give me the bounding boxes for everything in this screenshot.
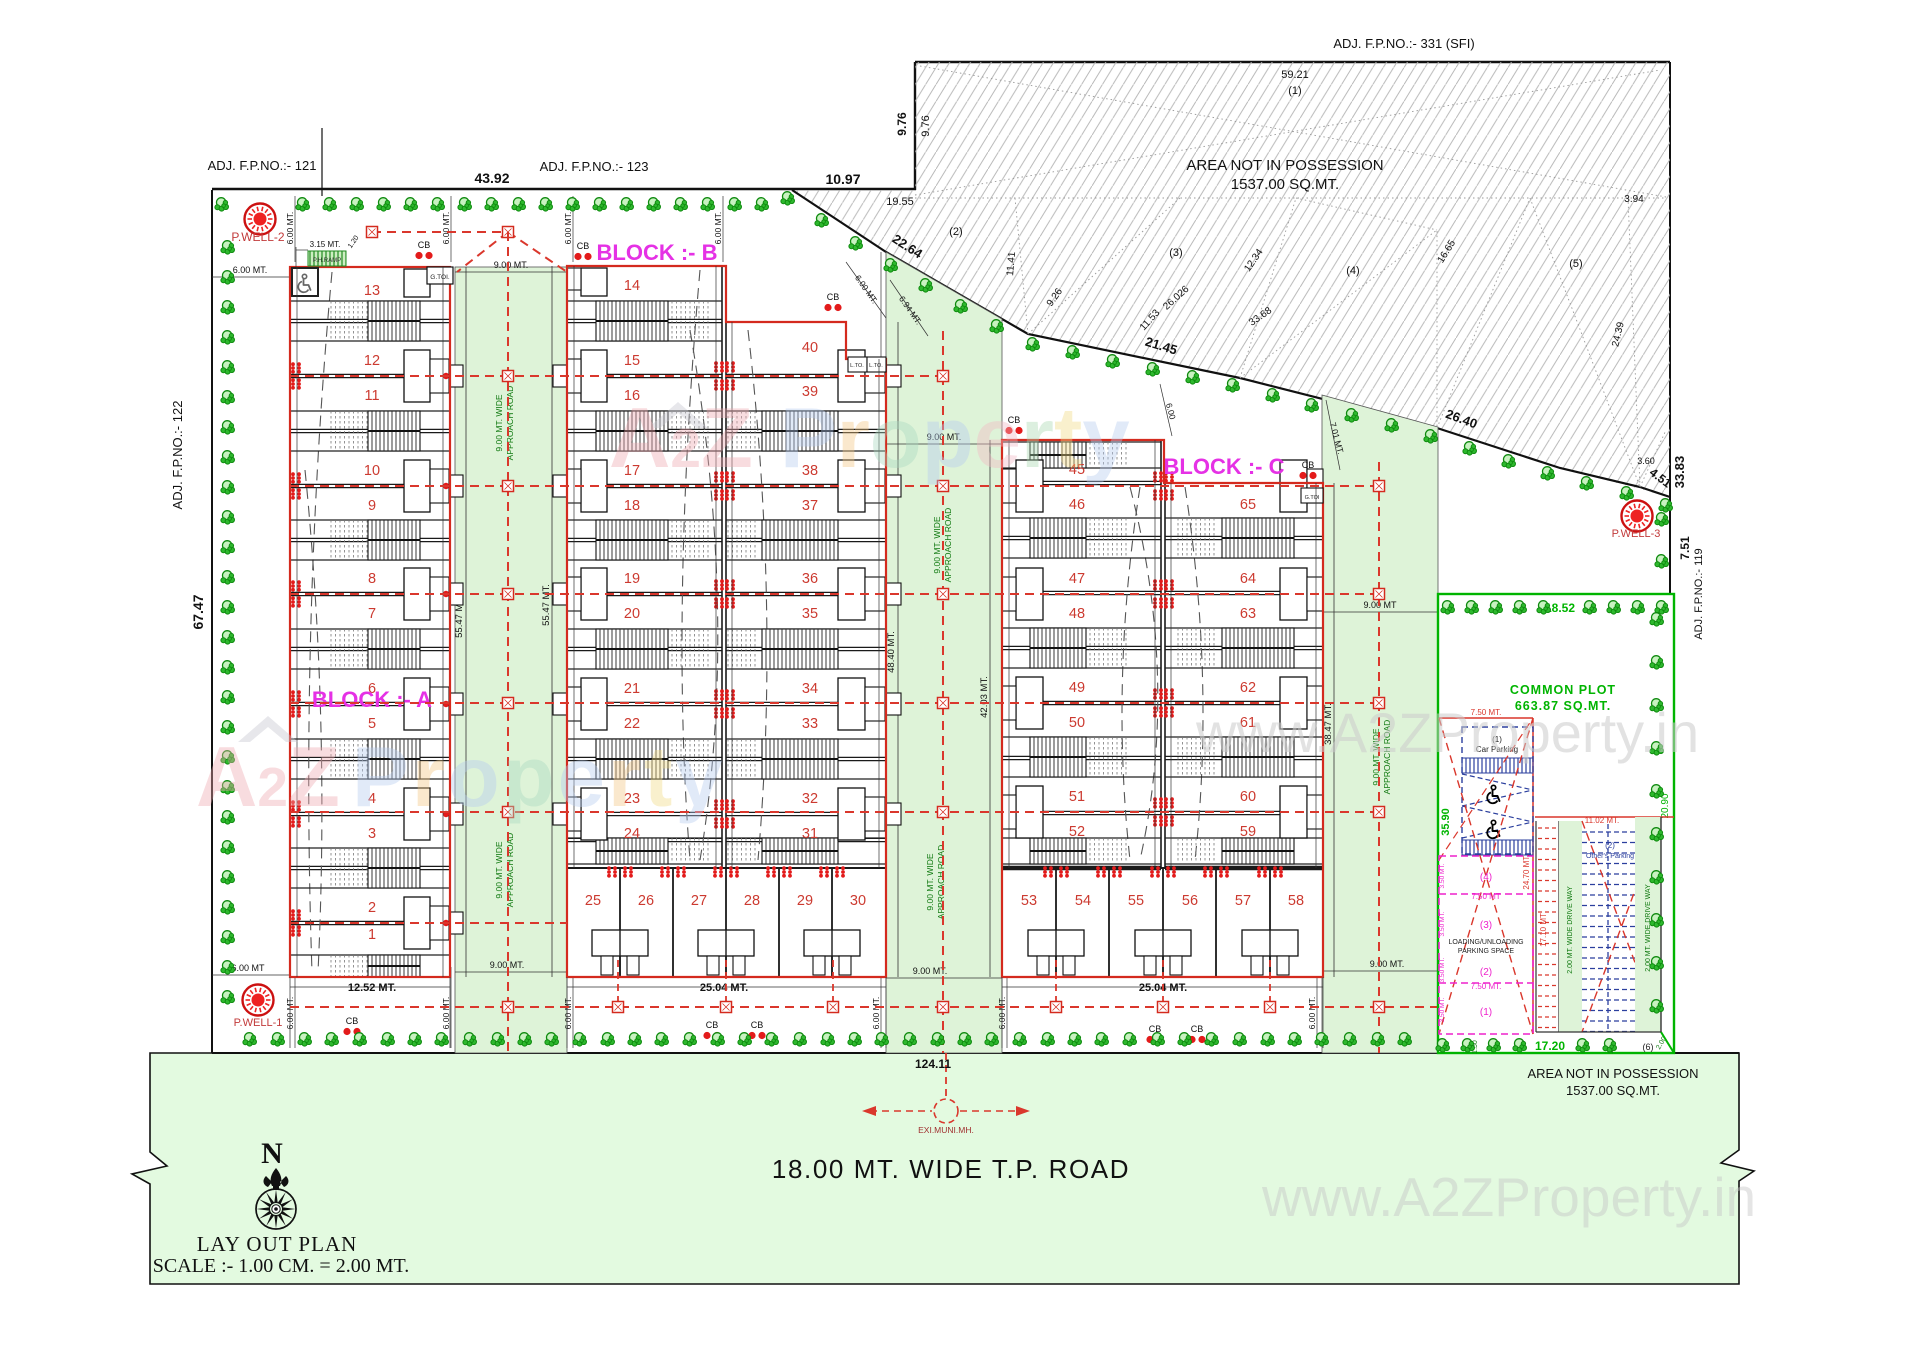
svg-text:ADJ. F.P.NO.:- 119: ADJ. F.P.NO.:- 119 <box>1693 548 1705 639</box>
svg-text:56: 56 <box>1182 893 1198 909</box>
svg-text:21: 21 <box>624 681 640 697</box>
svg-text:20: 20 <box>624 606 640 622</box>
svg-text:54: 54 <box>1075 893 1091 909</box>
svg-text:62: 62 <box>1240 680 1256 696</box>
svg-text:9.76: 9.76 <box>920 115 932 136</box>
svg-text:17.10 MT: 17.10 MT <box>1539 913 1548 947</box>
svg-text:7: 7 <box>368 606 376 622</box>
svg-text:(2): (2) <box>1605 841 1615 850</box>
svg-text:6.00 MT.: 6.00 MT. <box>1307 997 1317 1030</box>
svg-text:15: 15 <box>624 353 640 369</box>
svg-text:P.H.RAMP: P.H.RAMP <box>313 258 341 264</box>
svg-text:P.WELL-2: P.WELL-2 <box>231 230 284 244</box>
svg-text:42.03 MT.: 42.03 MT. <box>979 676 990 718</box>
svg-text:35: 35 <box>802 606 818 622</box>
svg-text:58: 58 <box>1288 893 1304 909</box>
svg-text:BLOCK :- C: BLOCK :- C <box>1164 454 1285 479</box>
svg-text:APPROACH ROAD: APPROACH ROAD <box>936 845 946 920</box>
svg-text:18: 18 <box>624 498 640 514</box>
svg-text:10.97: 10.97 <box>825 171 860 187</box>
svg-text:59: 59 <box>1240 824 1256 840</box>
svg-text:LOADING/UNLOADING: LOADING/UNLOADING <box>1448 939 1523 946</box>
svg-text:3.50 MT.: 3.50 MT. <box>1439 997 1446 1022</box>
svg-text:50: 50 <box>1069 715 1085 731</box>
svg-text:46: 46 <box>1069 497 1085 513</box>
svg-text:2.00 MT. WIDE DRIVE WAY: 2.00 MT. WIDE DRIVE WAY <box>1567 886 1574 974</box>
svg-text:48: 48 <box>1069 606 1085 622</box>
svg-text:P.WELL-3: P.WELL-3 <box>1612 528 1661 540</box>
svg-text:EXI.MUNI.MH.: EXI.MUNI.MH. <box>918 1125 974 1135</box>
svg-text:65: 65 <box>1240 497 1256 513</box>
svg-text:36: 36 <box>802 571 818 587</box>
svg-text:G.TOI.: G.TOI. <box>430 274 450 281</box>
svg-text:AREA NOT IN POSSESSION: AREA NOT IN POSSESSION <box>1186 157 1383 174</box>
svg-text:(2): (2) <box>949 226 962 238</box>
svg-text:3.50 MT.: 3.50 MT. <box>1439 911 1446 936</box>
svg-text:L.TO.: L.TO. <box>869 363 883 369</box>
svg-text:40: 40 <box>802 340 818 356</box>
svg-text:7.50 MT.: 7.50 MT. <box>1471 982 1502 991</box>
svg-text:9.00 MT: 9.00 MT <box>1363 600 1397 610</box>
svg-text:ADJ. F.P.NO.:- 331 (SFI): ADJ. F.P.NO.:- 331 (SFI) <box>1333 36 1474 51</box>
svg-text:49: 49 <box>1069 680 1085 696</box>
svg-text:BLOCK :- B: BLOCK :- B <box>597 240 718 265</box>
svg-text:31: 31 <box>802 826 818 842</box>
svg-text:18.00 MT. WIDE T.P. ROAD: 18.00 MT. WIDE T.P. ROAD <box>772 1154 1130 1184</box>
svg-text:34: 34 <box>802 681 818 697</box>
svg-text:30: 30 <box>850 893 866 909</box>
svg-text:6.00 MT.: 6.00 MT. <box>285 212 295 245</box>
svg-text:43.92: 43.92 <box>474 170 509 186</box>
svg-text:19: 19 <box>624 571 640 587</box>
svg-text:48.40 MT.: 48.40 MT. <box>886 631 897 673</box>
svg-text:9.00 MT. WIDE: 9.00 MT. WIDE <box>932 516 942 573</box>
svg-text:APPROACH ROAD: APPROACH ROAD <box>943 508 953 583</box>
svg-text:13: 13 <box>364 283 380 299</box>
svg-text:11: 11 <box>364 388 379 404</box>
svg-text:55.47 MT.: 55.47 MT. <box>541 584 552 626</box>
svg-text:APPROACH ROAD: APPROACH ROAD <box>505 386 515 461</box>
svg-text:9.00 MT.: 9.00 MT. <box>1370 959 1405 969</box>
svg-text:N: N <box>261 1137 283 1170</box>
svg-text:ADJ. F.P.NO.:- 122: ADJ. F.P.NO.:- 122 <box>170 401 185 510</box>
svg-text:2.00 MT. WIDE DRIVE WAY: 2.00 MT. WIDE DRIVE WAY <box>1645 884 1652 972</box>
svg-text:8: 8 <box>368 571 376 587</box>
svg-text:3.60: 3.60 <box>1637 456 1655 466</box>
svg-text:Property: Property <box>352 730 726 825</box>
svg-text:25: 25 <box>585 893 601 909</box>
svg-text:AREA NOT IN POSSESSION: AREA NOT IN POSSESSION <box>1528 1066 1699 1081</box>
svg-text:37: 37 <box>802 498 818 514</box>
svg-text:3.15 MT.: 3.15 MT. <box>310 240 341 249</box>
svg-text:27: 27 <box>691 893 707 909</box>
svg-text:59.21: 59.21 <box>1281 69 1309 81</box>
svg-text:(4): (4) <box>1346 265 1359 277</box>
svg-text:PARKING SPACE: PARKING SPACE <box>1458 948 1514 955</box>
svg-text:24.70 MT.: 24.70 MT. <box>1522 854 1531 889</box>
svg-text:6.00 MT.: 6.00 MT. <box>233 265 268 275</box>
svg-text:(4): (4) <box>1480 872 1492 883</box>
svg-text:Other's Parking: Other's Parking <box>1586 853 1634 860</box>
svg-text:P.WELL-1: P.WELL-1 <box>234 1017 283 1029</box>
svg-text:33.83: 33.83 <box>1672 456 1687 489</box>
svg-text:19.55: 19.55 <box>886 196 914 208</box>
svg-text:57: 57 <box>1235 893 1251 909</box>
svg-text:29: 29 <box>797 893 813 909</box>
svg-text:ADJ. F.P.NO.:- 121: ADJ. F.P.NO.:- 121 <box>208 158 317 173</box>
svg-text:28: 28 <box>744 893 760 909</box>
svg-text:52: 52 <box>1069 824 1085 840</box>
svg-text:3.94: 3.94 <box>1624 194 1644 205</box>
svg-text:6.00 MT.: 6.00 MT. <box>563 997 573 1030</box>
svg-text:3.50 MT.: 3.50 MT. <box>1439 957 1446 982</box>
svg-text:L.TO.: L.TO. <box>850 363 864 369</box>
svg-text:Property: Property <box>780 391 1130 486</box>
svg-text:G.TOI: G.TOI <box>1305 495 1320 501</box>
svg-text:SCALE :- 1.00 CM. = 2.00 MT.: SCALE :- 1.00 CM. = 2.00 MT. <box>153 1255 409 1277</box>
svg-text:(3): (3) <box>1480 920 1492 931</box>
svg-text:(1): (1) <box>1480 1007 1492 1018</box>
svg-text:6.00 MT.: 6.00 MT. <box>871 997 881 1030</box>
svg-text:25.04 MT.: 25.04 MT. <box>700 982 748 994</box>
svg-text:LAY OUT PLAN: LAY OUT PLAN <box>197 1232 358 1256</box>
svg-text:11.41: 11.41 <box>1005 251 1018 277</box>
svg-text:35.90: 35.90 <box>1440 808 1452 836</box>
svg-text:1: 1 <box>368 927 376 943</box>
svg-text:3.50 MT.: 3.50 MT. <box>1439 863 1446 888</box>
svg-text:10: 10 <box>364 463 380 479</box>
svg-text:(2): (2) <box>1480 967 1492 978</box>
svg-text:26: 26 <box>638 893 654 909</box>
svg-text:60: 60 <box>1240 789 1256 805</box>
svg-text:24: 24 <box>624 826 640 842</box>
svg-text:55: 55 <box>1128 893 1144 909</box>
svg-text:17.20: 17.20 <box>1535 1039 1565 1053</box>
svg-text:9.00 MT. WIDE: 9.00 MT. WIDE <box>925 853 935 910</box>
svg-text:11.02 MT.: 11.02 MT. <box>1585 816 1620 825</box>
svg-text:9.00 MT. WIDE: 9.00 MT. WIDE <box>494 394 504 451</box>
svg-text:(5): (5) <box>1569 258 1582 270</box>
svg-text:6.00 MT.: 6.00 MT. <box>441 212 451 245</box>
svg-text:9.76: 9.76 <box>895 112 909 136</box>
svg-text:7.50 MT: 7.50 MT <box>1471 892 1500 901</box>
svg-text:APPROACH ROAD: APPROACH ROAD <box>505 833 515 908</box>
svg-text:6.00 MT.: 6.00 MT. <box>441 997 451 1030</box>
svg-text:51: 51 <box>1069 789 1085 805</box>
svg-text:7.51: 7.51 <box>1678 536 1692 560</box>
svg-text:63: 63 <box>1240 606 1256 622</box>
svg-text:(3): (3) <box>1169 247 1182 259</box>
svg-text:12.52 MT.: 12.52 MT. <box>348 982 396 994</box>
svg-text:(6): (6) <box>1643 1042 1654 1052</box>
svg-text:9.00 MT. WIDE: 9.00 MT. WIDE <box>494 841 504 898</box>
svg-text:53: 53 <box>1021 893 1037 909</box>
svg-text:ADJ. F.P.NO.:- 123: ADJ. F.P.NO.:- 123 <box>540 159 649 174</box>
svg-text:14: 14 <box>624 278 640 294</box>
svg-text:1537.00 SQ.MT.: 1537.00 SQ.MT. <box>1566 1083 1660 1098</box>
svg-text:1537.00 SQ.MT.: 1537.00 SQ.MT. <box>1231 176 1339 193</box>
svg-text:www.A2ZProperty.in: www.A2ZProperty.in <box>1195 701 1699 764</box>
svg-text:67.47: 67.47 <box>190 594 206 629</box>
svg-text:www.A2ZProperty.in: www.A2ZProperty.in <box>1261 1166 1756 1228</box>
svg-text:64: 64 <box>1240 571 1256 587</box>
svg-text:(1): (1) <box>1288 85 1301 97</box>
svg-text:32: 32 <box>802 791 818 807</box>
svg-text:BLOCK :- A: BLOCK :- A <box>312 687 432 712</box>
svg-text:47: 47 <box>1069 571 1085 587</box>
svg-text:12: 12 <box>364 353 380 369</box>
svg-text:2: 2 <box>368 900 376 916</box>
svg-text:3: 3 <box>368 826 376 842</box>
svg-text:6.00 MT: 6.00 MT <box>231 963 265 973</box>
svg-text:COMMON PLOT: COMMON PLOT <box>1510 683 1616 697</box>
svg-text:9.00 MT.: 9.00 MT. <box>494 260 529 270</box>
svg-text:9: 9 <box>368 498 376 514</box>
svg-text:124.11: 124.11 <box>915 1057 951 1071</box>
svg-text:33: 33 <box>802 716 818 732</box>
svg-text:6.00 MT.: 6.00 MT. <box>563 212 573 245</box>
